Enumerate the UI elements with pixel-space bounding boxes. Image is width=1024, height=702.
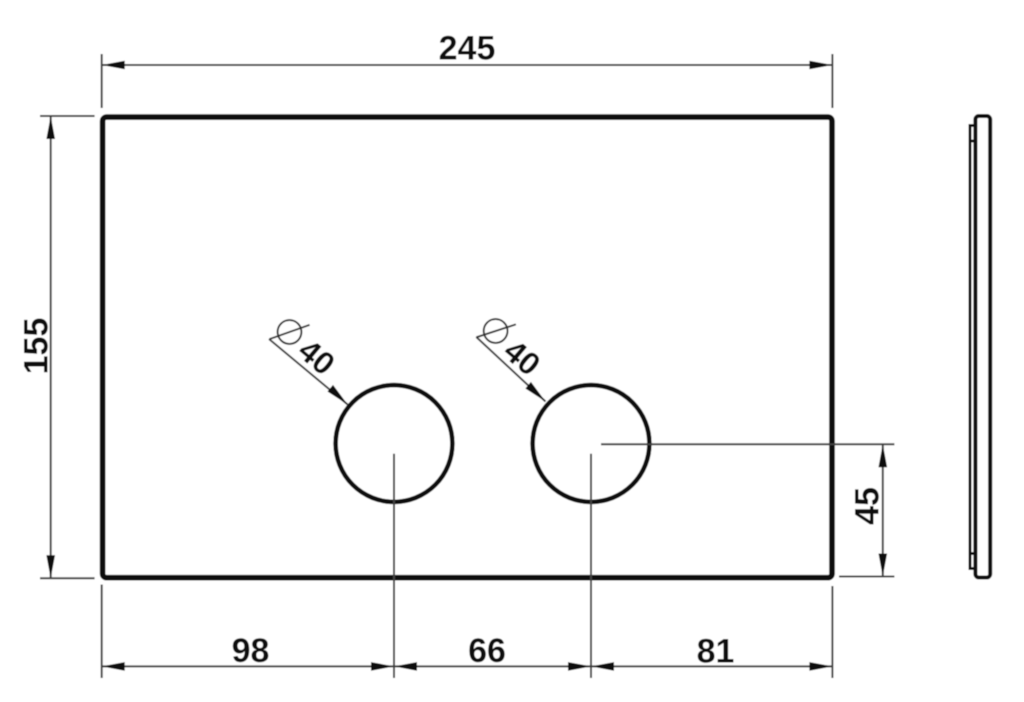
svg-text:81: 81 <box>697 633 735 671</box>
svg-text:66: 66 <box>468 632 506 670</box>
svg-text:155: 155 <box>18 318 56 375</box>
svg-text:45: 45 <box>849 487 887 525</box>
svg-text:245: 245 <box>439 30 496 68</box>
svg-text:98: 98 <box>232 632 270 670</box>
